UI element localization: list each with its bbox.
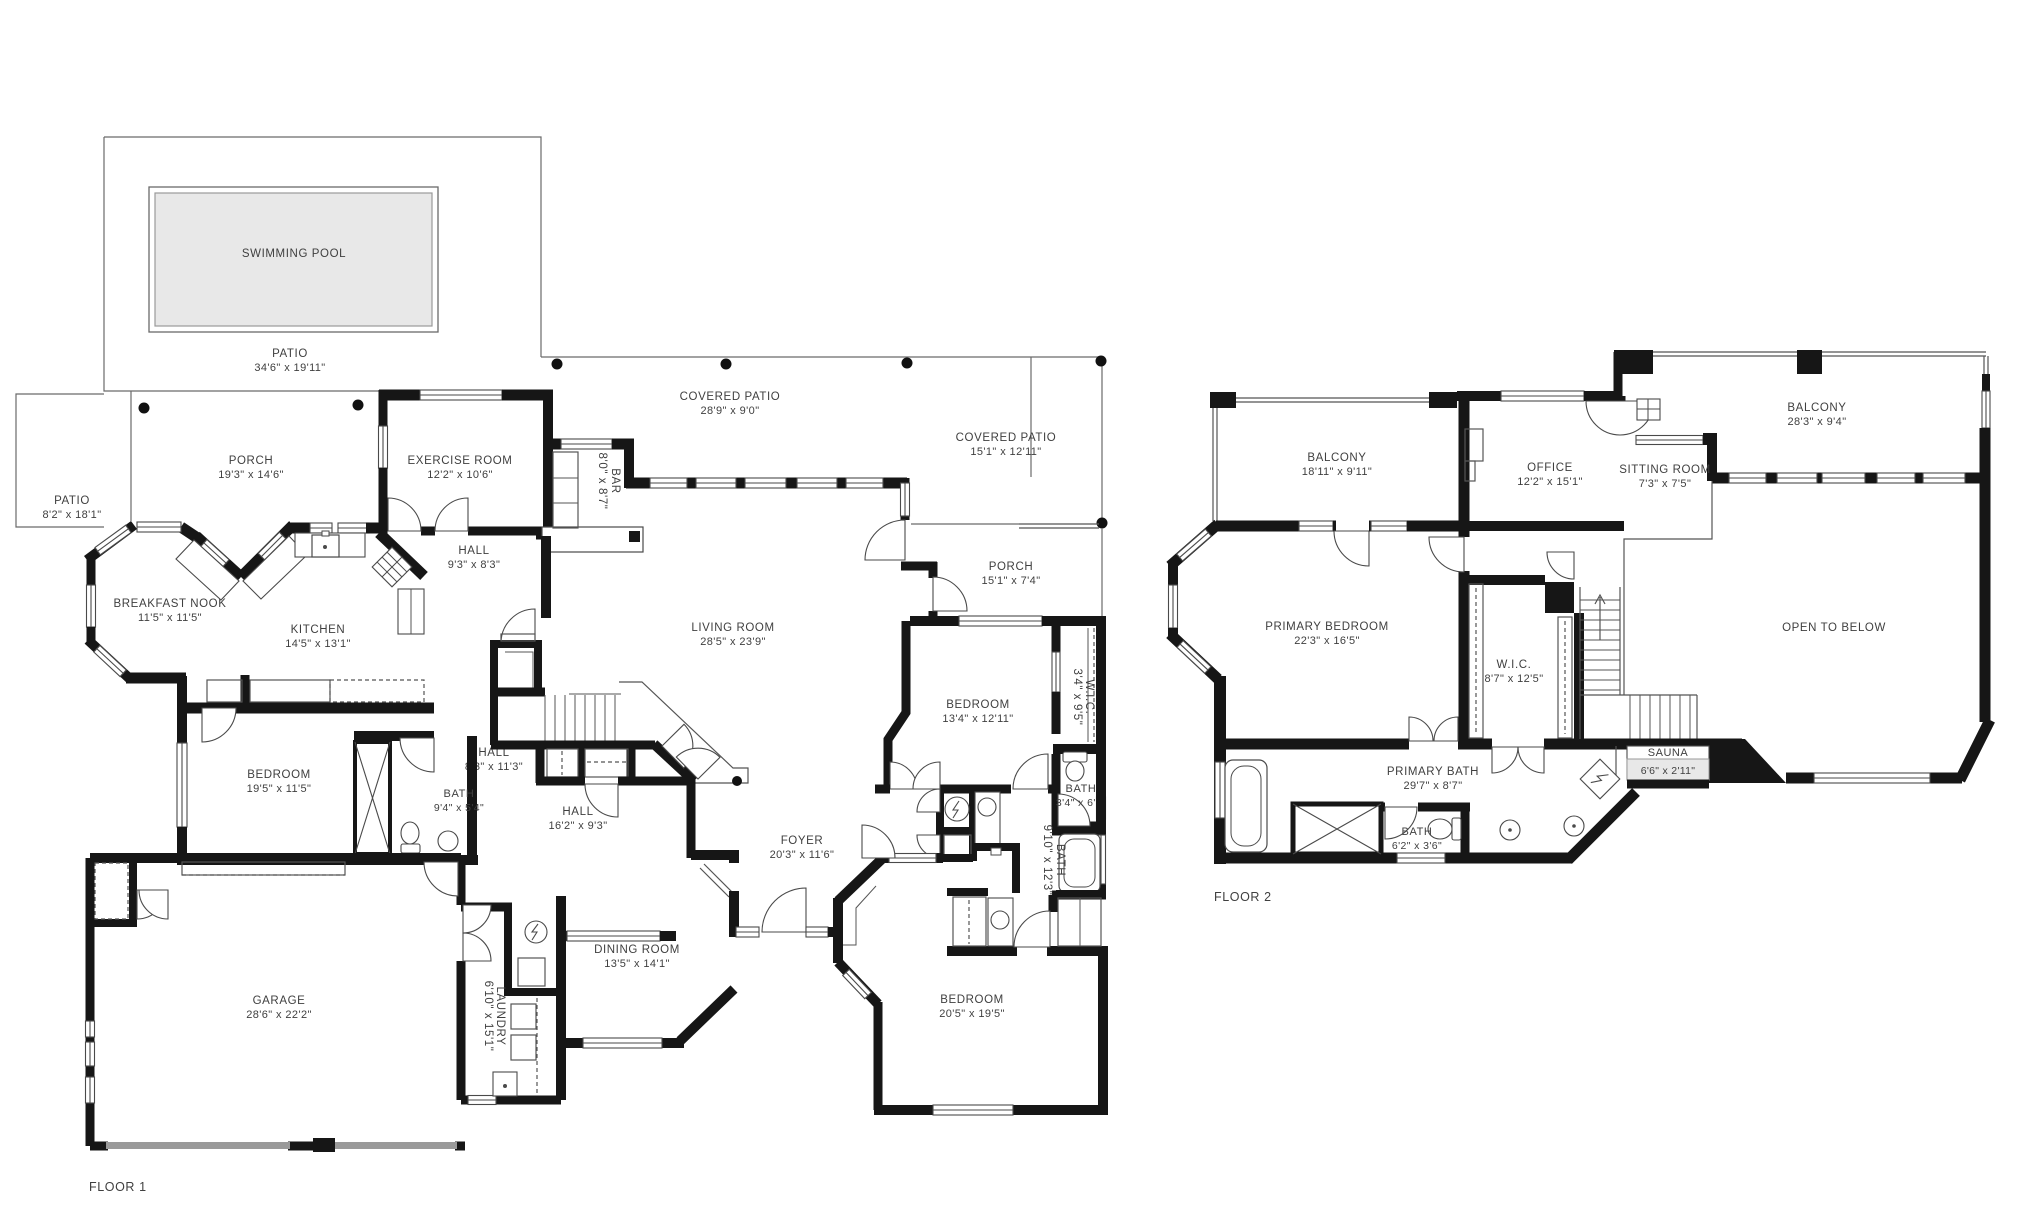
- svg-text:28'6" x 22'2": 28'6" x 22'2": [246, 1009, 312, 1021]
- svg-text:19'3" x 14'6": 19'3" x 14'6": [218, 469, 284, 481]
- svg-text:BALCONY: BALCONY: [1787, 402, 1846, 414]
- svg-text:PORCH: PORCH: [989, 561, 1034, 573]
- svg-text:LAUNDRY: LAUNDRY: [494, 987, 506, 1046]
- svg-text:18'11" x 9'11": 18'11" x 9'11": [1302, 466, 1372, 478]
- svg-text:6'10" x 15'1": 6'10" x 15'1": [482, 981, 494, 1052]
- svg-text:COVERED PATIO: COVERED PATIO: [680, 391, 781, 403]
- svg-text:7'3" x 7'5": 7'3" x 7'5": [1639, 478, 1692, 490]
- svg-text:SWIMMING POOL: SWIMMING POOL: [242, 248, 346, 260]
- svg-text:9'10" x 12'3": 9'10" x 12'3": [1041, 825, 1053, 896]
- svg-text:15'1" x 7'4": 15'1" x 7'4": [981, 575, 1040, 587]
- svg-text:KITCHEN: KITCHEN: [291, 624, 346, 636]
- svg-text:12'2" x 10'6": 12'2" x 10'6": [427, 469, 493, 481]
- svg-text:14'5" x 13'1": 14'5" x 13'1": [285, 638, 351, 650]
- svg-text:28'3" x 9'4": 28'3" x 9'4": [1787, 416, 1846, 428]
- svg-text:19'5" x 11'5": 19'5" x 11'5": [247, 783, 312, 795]
- svg-text:HALL: HALL: [562, 806, 593, 818]
- svg-text:FOYER: FOYER: [781, 835, 824, 847]
- svg-text:LIVING ROOM: LIVING ROOM: [691, 622, 774, 634]
- svg-text:8'0" x 8'7": 8'0" x 8'7": [596, 453, 608, 510]
- svg-text:8'2" x 18'1": 8'2" x 18'1": [42, 509, 101, 521]
- svg-text:BEDROOM: BEDROOM: [940, 994, 1004, 1006]
- svg-text:EXERCISE ROOM: EXERCISE ROOM: [408, 455, 513, 467]
- svg-text:6'2" x 3'6": 6'2" x 3'6": [1392, 840, 1442, 852]
- svg-text:3'4" x 9'5": 3'4" x 9'5": [1071, 669, 1083, 726]
- svg-text:28'5" x 23'9": 28'5" x 23'9": [700, 636, 766, 648]
- svg-text:BALCONY: BALCONY: [1307, 452, 1366, 464]
- svg-text:22'3" x 16'5": 22'3" x 16'5": [1294, 635, 1360, 647]
- svg-text:W.I.C.: W.I.C.: [1083, 680, 1095, 715]
- svg-text:9'4" x 5'4": 9'4" x 5'4": [434, 802, 484, 814]
- svg-text:13'4" x 12'11": 13'4" x 12'11": [942, 713, 1013, 725]
- svg-text:15'1" x 12'11": 15'1" x 12'11": [970, 446, 1041, 458]
- svg-text:COVERED PATIO: COVERED PATIO: [956, 432, 1057, 444]
- svg-text:FLOOR 1: FLOOR 1: [89, 1180, 147, 1194]
- svg-text:W.I.C.: W.I.C.: [1497, 659, 1532, 671]
- svg-text:13'5" x 14'1": 13'5" x 14'1": [604, 958, 670, 970]
- svg-text:SAUNA: SAUNA: [1648, 747, 1689, 759]
- svg-text:HALL: HALL: [458, 545, 489, 557]
- svg-text:BATH: BATH: [1054, 844, 1066, 876]
- svg-text:11'5" x 11'5": 11'5" x 11'5": [138, 612, 202, 624]
- svg-text:PATIO: PATIO: [54, 495, 90, 507]
- svg-text:BEDROOM: BEDROOM: [247, 769, 311, 781]
- svg-text:OFFICE: OFFICE: [1527, 462, 1573, 474]
- svg-text:34'6" x 19'11": 34'6" x 19'11": [254, 362, 325, 374]
- svg-text:DINING ROOM: DINING ROOM: [594, 944, 680, 956]
- svg-text:16'2" x 9'3": 16'2" x 9'3": [548, 820, 607, 832]
- svg-text:SITTING ROOM: SITTING ROOM: [1619, 464, 1711, 476]
- svg-text:20'5" x 19'5": 20'5" x 19'5": [939, 1008, 1005, 1020]
- svg-text:28'9" x 9'0": 28'9" x 9'0": [700, 405, 759, 417]
- svg-text:9'3" x 8'3": 9'3" x 8'3": [448, 559, 501, 571]
- svg-text:BATH: BATH: [444, 788, 475, 800]
- svg-text:PORCH: PORCH: [229, 455, 274, 467]
- svg-text:BEDROOM: BEDROOM: [946, 699, 1010, 711]
- svg-text:8'7" x 12'5": 8'7" x 12'5": [1484, 673, 1543, 685]
- svg-text:12'2" x 15'1": 12'2" x 15'1": [1517, 476, 1583, 488]
- svg-text:6'6" x 2'11": 6'6" x 2'11": [1641, 765, 1696, 777]
- svg-text:GARAGE: GARAGE: [253, 995, 306, 1007]
- svg-text:FLOOR 2: FLOOR 2: [1214, 890, 1272, 904]
- svg-text:PRIMARY BATH: PRIMARY BATH: [1387, 766, 1479, 778]
- svg-text:PATIO: PATIO: [272, 348, 308, 360]
- svg-text:20'3" x 11'6": 20'3" x 11'6": [770, 849, 835, 861]
- svg-text:OPEN TO BELOW: OPEN TO BELOW: [1782, 622, 1886, 634]
- svg-text:BATH: BATH: [1402, 826, 1433, 838]
- svg-text:BAR: BAR: [609, 468, 621, 493]
- svg-text:BREAKFAST NOOK: BREAKFAST NOOK: [114, 598, 227, 610]
- svg-text:PRIMARY BEDROOM: PRIMARY BEDROOM: [1265, 621, 1389, 633]
- svg-text:29'7" x 8'7": 29'7" x 8'7": [1403, 780, 1462, 792]
- svg-text:BATH: BATH: [1066, 783, 1097, 795]
